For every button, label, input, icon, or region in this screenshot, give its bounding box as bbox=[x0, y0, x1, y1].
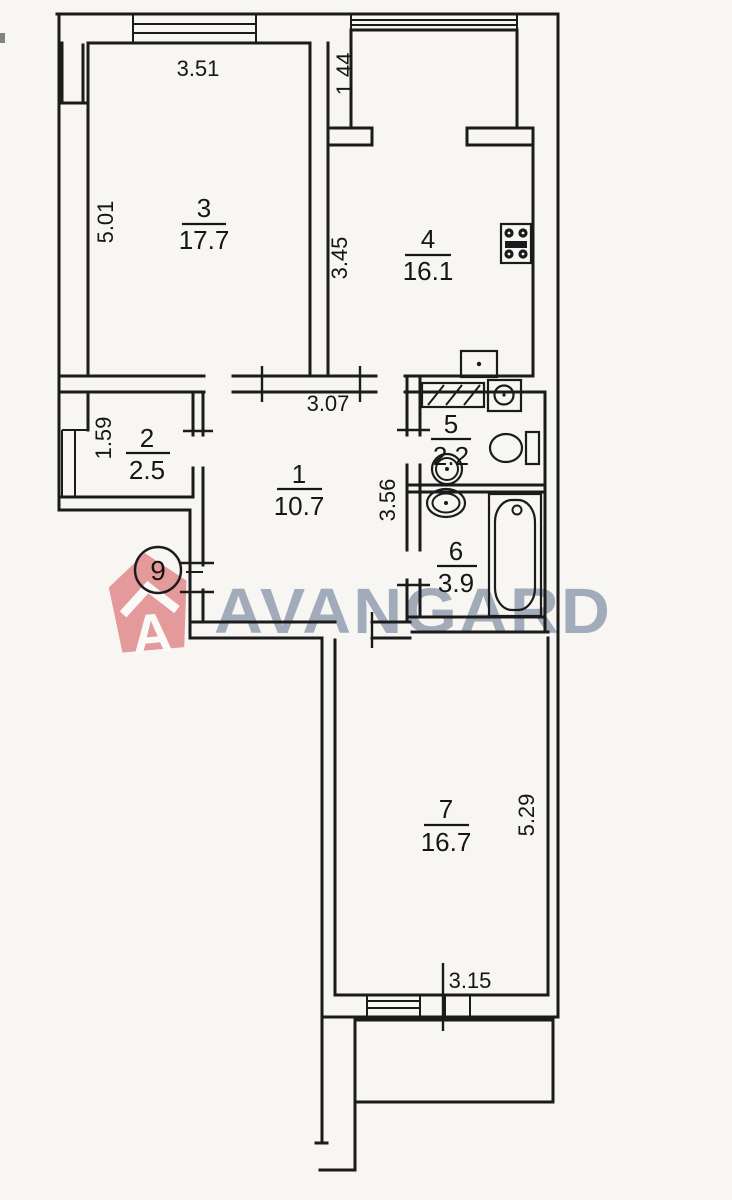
dim-label: 3.15 bbox=[449, 968, 492, 993]
floor-marker-label: 9 bbox=[150, 555, 166, 586]
dim-label: 5.01 bbox=[93, 201, 118, 244]
dim-label: 3.07 bbox=[307, 391, 350, 416]
logo-letter: A bbox=[129, 600, 175, 666]
dim-label: 1.59 bbox=[91, 417, 116, 460]
room-number: 5 bbox=[444, 409, 458, 439]
room-area: 3.9 bbox=[438, 568, 474, 598]
dim-label: 1.44 bbox=[332, 53, 357, 96]
room-area: 17.7 bbox=[179, 225, 230, 255]
dim-label: 3.45 bbox=[327, 237, 352, 280]
room-area: 10.7 bbox=[274, 491, 325, 521]
washbasin-icon bbox=[427, 489, 465, 517]
room-number: 2 bbox=[140, 423, 154, 453]
dim-label: 3.51 bbox=[177, 56, 220, 81]
room-number: 4 bbox=[421, 224, 435, 254]
room-area: 2.5 bbox=[129, 455, 165, 485]
room-number: 7 bbox=[439, 794, 453, 824]
room-number: 1 bbox=[292, 459, 306, 489]
room-number: 6 bbox=[449, 536, 463, 566]
room-area: 2.2 bbox=[433, 441, 469, 471]
dim-label: 5.29 bbox=[514, 794, 539, 837]
room-area: 16.1 bbox=[403, 256, 454, 286]
room-number: 3 bbox=[197, 193, 211, 223]
scan-artifact bbox=[0, 33, 5, 43]
dim-label: 3.56 bbox=[375, 479, 400, 522]
floor-plan-canvas: A AVANGARD bbox=[0, 0, 732, 1200]
room-area: 16.7 bbox=[421, 827, 472, 857]
scanned-floor-plan-page: A AVANGARD bbox=[0, 0, 732, 1200]
